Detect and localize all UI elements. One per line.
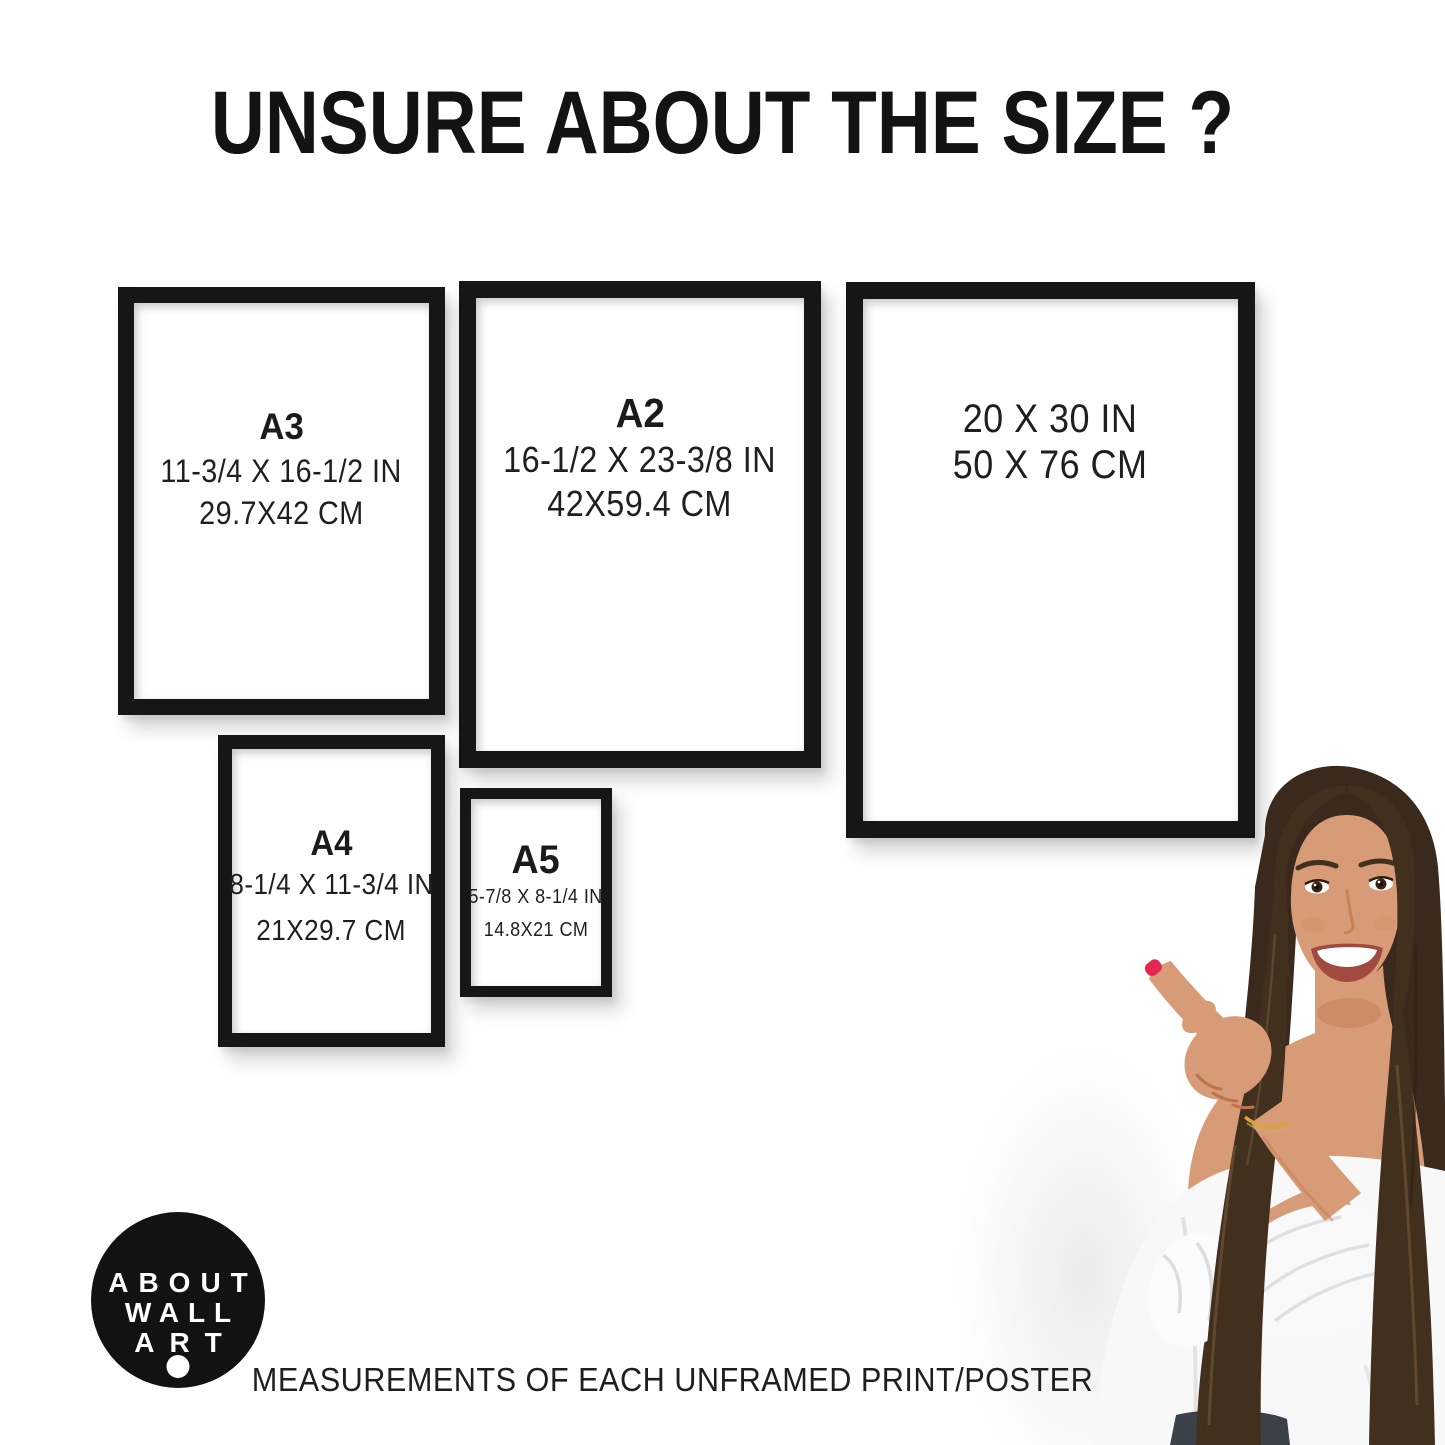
cheek-shading (1374, 915, 1396, 931)
frame-a5-mat: A5 5-7/8 X 8-1/4 IN 14.8X21 CM (471, 799, 601, 986)
frame-a2-mat: A2 16-1/2 X 23-3/8 IN 42X59.4 CM (476, 298, 804, 751)
frame-a5: A5 5-7/8 X 8-1/4 IN 14.8X21 CM (460, 788, 612, 997)
frame-a4-inches: 8-1/4 X 11-3/4 IN (229, 866, 433, 904)
frame-a3: A3 11-3/4 X 16-1/2 IN 29.7X42 CM (118, 287, 445, 715)
frame-a4-mat: A4 8-1/4 X 11-3/4 IN 21X29.7 CM (232, 749, 431, 1033)
frame-a4: A4 8-1/4 X 11-3/4 IN 21X29.7 CM (218, 735, 445, 1047)
cheek-shading (1301, 917, 1325, 933)
frame-a3-inches: 11-3/4 X 16-1/2 IN (161, 450, 402, 492)
frame-a2-size-label: A2 (615, 388, 664, 438)
woman-pointing-illustration (945, 765, 1445, 1445)
frame-a5-size-label: A5 (512, 837, 560, 884)
brand-logo-word-art: ART (119, 1328, 237, 1358)
frame-a5-inches: 5-7/8 X 8-1/4 IN (469, 884, 603, 910)
page-title: UNSURE ABOUT THE SIZE ? (116, 74, 1330, 172)
frame-20x30-inches: 20 X 30 IN (963, 396, 1138, 442)
frame-a4-size-label: A4 (310, 822, 352, 866)
frame-a4-cm: 21X29.7 CM (257, 912, 407, 950)
frame-20x30-mat: 20 X 30 IN 50 X 76 CM (863, 299, 1238, 821)
frame-a3-size-label: A3 (259, 404, 303, 450)
eye-left (1305, 880, 1329, 893)
frame-20x30-cm: 50 X 76 CM (953, 442, 1148, 488)
size-guide-poster: UNSURE ABOUT THE SIZE ? A3 11-3/4 X 16-1… (0, 0, 1445, 1445)
eye-right (1369, 877, 1393, 890)
frame-a2-inches: 16-1/2 X 23-3/8 IN (504, 438, 777, 482)
frame-a2-cm: 42X59.4 CM (548, 482, 733, 526)
chin-shadow (1317, 998, 1381, 1028)
brand-logo-word-wall: WALL (116, 1298, 240, 1328)
frame-a3-cm: 29.7X42 CM (199, 492, 364, 534)
frame-a5-cm: 14.8X21 CM (484, 917, 589, 943)
frame-20x30: 20 X 30 IN 50 X 76 CM (846, 282, 1255, 838)
frame-a3-mat: A3 11-3/4 X 16-1/2 IN 29.7X42 CM (134, 303, 429, 699)
brand-logo-word-about: ABOUT (98, 1268, 258, 1298)
frame-a2: A2 16-1/2 X 23-3/8 IN 42X59.4 CM (459, 281, 821, 768)
